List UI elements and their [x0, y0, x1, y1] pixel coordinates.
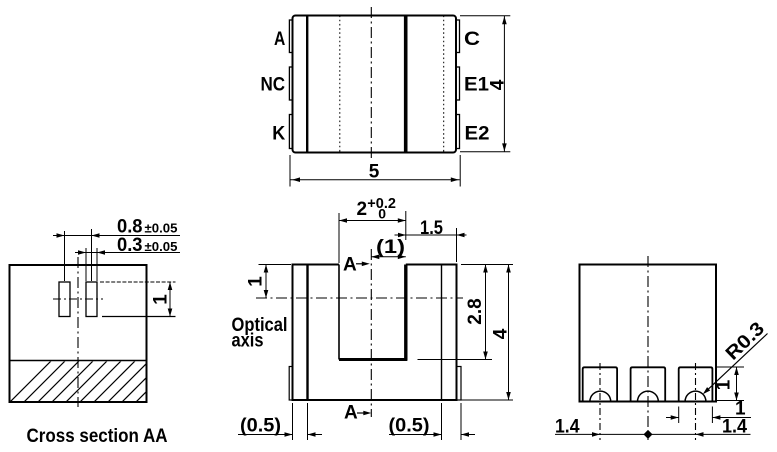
svg-text:0: 0 [378, 206, 386, 222]
svg-text:A: A [343, 255, 357, 276]
svg-text:(0.5): (0.5) [240, 416, 281, 437]
svg-text:E1: E1 [464, 75, 489, 96]
svg-text:5: 5 [369, 162, 380, 183]
svg-text:2: 2 [357, 199, 368, 220]
svg-text:Cross section AA: Cross section AA [27, 426, 168, 447]
svg-text:A: A [344, 403, 358, 424]
svg-text:1: 1 [151, 294, 172, 305]
svg-text:C: C [464, 29, 480, 50]
svg-text:4: 4 [487, 79, 508, 90]
svg-text:(0.5): (0.5) [389, 416, 430, 437]
svg-text:(1): (1) [376, 237, 405, 258]
svg-text:1.4: 1.4 [555, 417, 580, 438]
svg-text:axis: axis [232, 331, 264, 352]
svg-text:E2: E2 [465, 124, 490, 145]
svg-text:4: 4 [491, 328, 512, 339]
svg-text:A: A [274, 29, 286, 50]
svg-text:K: K [272, 124, 285, 145]
svg-text:1.5: 1.5 [420, 218, 443, 239]
svg-text:0.3±0.05: 0.3±0.05 [117, 235, 177, 256]
svg-text:1: 1 [714, 379, 735, 390]
svg-text:2.8: 2.8 [465, 298, 486, 324]
svg-text:1: 1 [246, 276, 267, 287]
svg-text:1.4: 1.4 [722, 417, 747, 438]
svg-text:NC: NC [261, 75, 286, 96]
